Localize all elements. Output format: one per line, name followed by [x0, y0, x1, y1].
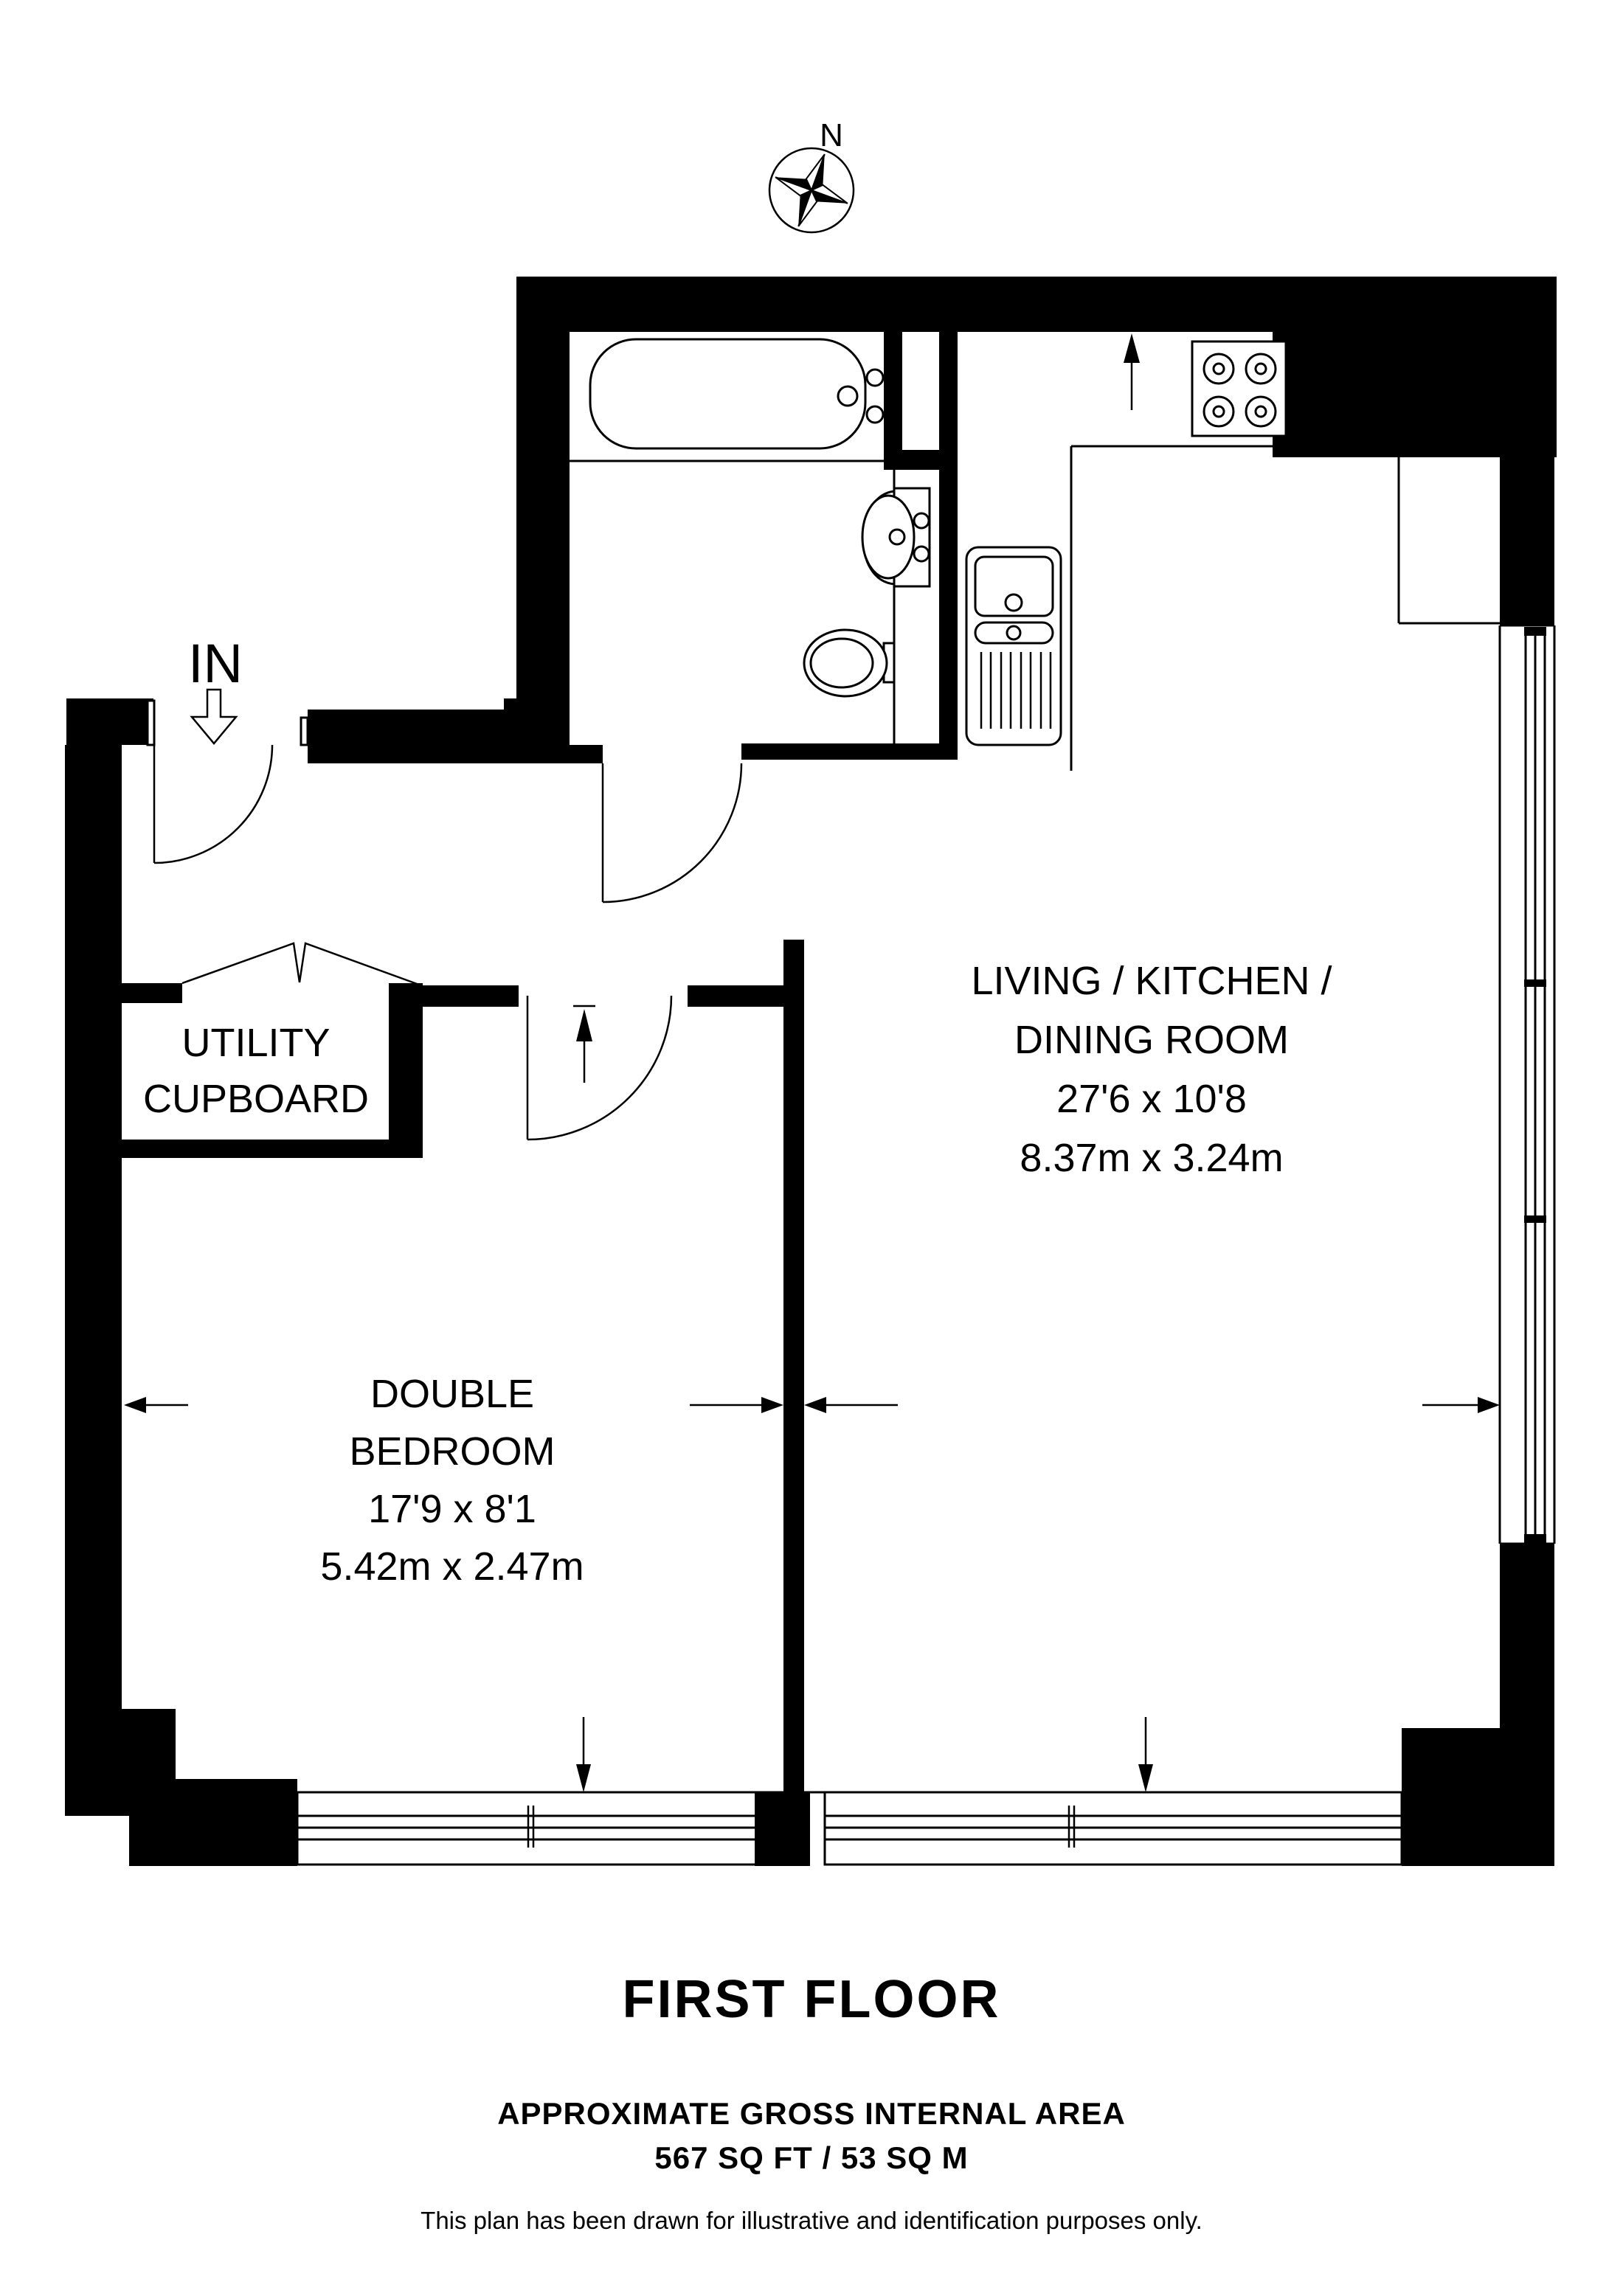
basin-bowl — [862, 496, 914, 578]
wall-bathroom-kitchen — [939, 470, 958, 745]
utility-line2: CUPBOARD — [143, 1077, 369, 1121]
area-heading: APPROXIMATE GROSS INTERNAL AREA — [497, 2096, 1126, 2131]
window-mullion — [1524, 979, 1546, 987]
hob-icon — [1192, 341, 1286, 436]
wall-bottom-right-pier — [1402, 1728, 1500, 1866]
bedroom-label: DOUBLE BEDROOM 17'9 x 8'1 5.42m x 2.47m — [320, 1372, 584, 1589]
wall-top-right-mass — [1273, 332, 1557, 457]
window-cap — [1524, 1534, 1546, 1543]
compass-star-light — [775, 154, 848, 226]
kitchen-up-arrow — [1124, 333, 1140, 410]
basin-tap — [914, 513, 929, 528]
window-living — [825, 1792, 1402, 1865]
window-cap — [1524, 627, 1546, 636]
footer: FIRST FLOOR APPROXIMATE GROSS INTERNAL A… — [421, 1970, 1202, 2234]
utility-line1: UTILITY — [181, 1021, 330, 1065]
wash-basin-icon — [862, 488, 930, 586]
shaft-void — [902, 332, 939, 450]
walls — [65, 277, 1557, 1866]
bedroom-door — [527, 996, 671, 1140]
disclaimer-text: This plan has been drawn for illustrativ… — [421, 2207, 1202, 2234]
bedroom-dims-metric: 5.42m x 2.47m — [320, 1544, 584, 1589]
compass-north-label: N — [820, 117, 843, 153]
floor-title: FIRST FLOOR — [623, 1970, 1001, 2029]
sink-drain — [1007, 626, 1020, 639]
bedroom-dims-imperial: 17'9 x 8'1 — [368, 1487, 536, 1531]
entrance-label: IN — [188, 633, 243, 694]
wall-right-above-window — [1500, 457, 1554, 625]
hob-burner-dot — [1256, 406, 1266, 417]
door-jamb — [301, 718, 308, 745]
bathtub-tap — [867, 406, 883, 423]
wall-cupboard-top-left — [122, 983, 182, 1003]
wall-bathdoor-stub — [570, 745, 603, 763]
bathtub-tap — [867, 370, 883, 386]
utility-cupboard-label: UTILITY CUPBOARD — [143, 1021, 369, 1121]
wall-bedroom-living-divider — [783, 940, 804, 1792]
window-mullion — [1524, 1215, 1546, 1223]
sink-drain — [1006, 594, 1022, 611]
dimension-arrows — [124, 1397, 1500, 1413]
wall-entry-left — [66, 698, 153, 745]
floorplan-canvas: N — [0, 0, 1623, 2296]
wall-right-below-window — [1500, 1544, 1554, 1866]
wall-bedroom-top-left — [423, 985, 519, 1007]
bedroom-name-line2: BEDROOM — [349, 1429, 555, 1474]
kitchen-sink-icon — [966, 547, 1061, 745]
bathroom-door — [603, 763, 741, 902]
wall-left-outer — [65, 745, 122, 1816]
wall-cupboard-right — [389, 983, 423, 1158]
toilet-icon — [804, 630, 894, 696]
living-dims-metric: 8.37m x 3.24m — [1020, 1136, 1283, 1180]
area-value: 567 SQ FT / 53 SQ M — [654, 2140, 968, 2175]
bathtub-drain — [838, 386, 857, 406]
door-swing-arc — [527, 996, 671, 1140]
wall-divider-bottom-chunk — [755, 1792, 810, 1866]
window-right — [1500, 625, 1554, 1544]
wall-top — [516, 277, 1557, 332]
hob-burner-dot — [1214, 364, 1224, 374]
wall-bedroom-top-right — [688, 985, 799, 1007]
compass-rose-icon: N — [769, 117, 854, 232]
hob-burner-dot — [1256, 364, 1266, 374]
door-jamb — [148, 701, 154, 745]
bifold-doors — [182, 943, 419, 985]
wall-cupboard-bottom — [65, 1140, 423, 1158]
entrance-down-arrow-icon — [192, 690, 236, 743]
bedroom-name-line1: DOUBLE — [370, 1372, 534, 1416]
hob-burner-dot — [1214, 406, 1224, 417]
wall-entry-corner — [504, 698, 570, 763]
living-window-down-arrow — [1138, 1717, 1153, 1792]
living-name-line1: LIVING / KITCHEN / — [971, 959, 1332, 1003]
living-name-line2: DINING ROOM — [1014, 1018, 1289, 1062]
living-room-label: LIVING / KITCHEN / DINING ROOM 27'6 x 10… — [971, 959, 1332, 1180]
kitchen-counter — [1071, 446, 1500, 771]
bathtub-icon — [570, 339, 884, 461]
bedroom-window-down-arrow — [576, 1717, 591, 1792]
wall-bathroom-bottom — [741, 743, 958, 760]
basin-drain — [890, 530, 904, 544]
wall-entry-right — [308, 710, 504, 763]
door-swing-arc — [154, 745, 272, 863]
bedroom-door-up-arrow — [573, 1006, 595, 1083]
toilet-seat — [811, 639, 873, 687]
entrance-marker: IN — [188, 633, 243, 743]
bathtub-outline — [590, 339, 865, 448]
basin-tap — [914, 547, 929, 561]
living-dims-imperial: 27'6 x 10'8 — [1056, 1077, 1247, 1121]
door-swing-arc — [603, 763, 741, 902]
floorplan-page: N — [0, 0, 1623, 2296]
